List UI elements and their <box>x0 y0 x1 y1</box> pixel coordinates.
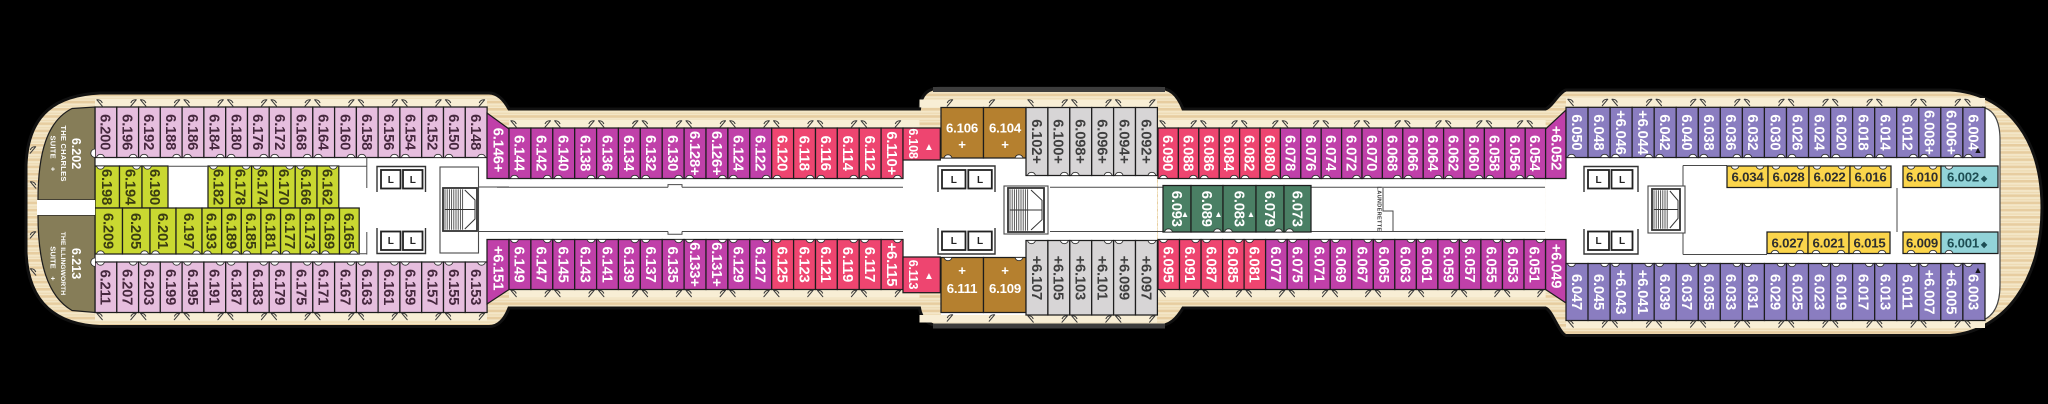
svg-text:6.021: 6.021 <box>1812 236 1844 251</box>
svg-text:6.196: 6.196 <box>119 114 135 150</box>
svg-text:6.074: 6.074 <box>1322 135 1338 172</box>
svg-text:6.026: 6.026 <box>1788 114 1804 150</box>
svg-text:6.008+: 6.008+ <box>1921 110 1937 155</box>
svg-text:6.096+: 6.096+ <box>1094 119 1110 164</box>
svg-text:+6.097: +6.097 <box>1137 256 1153 300</box>
svg-text:6.095: 6.095 <box>1160 246 1176 282</box>
svg-text:6.039: 6.039 <box>1656 274 1672 310</box>
svg-text:6.031: 6.031 <box>1744 274 1760 310</box>
svg-text:6.175: 6.175 <box>293 269 309 305</box>
svg-text:6.034: 6.034 <box>1731 170 1764 185</box>
svg-text:6.064: 6.064 <box>1424 135 1440 172</box>
svg-text:6.060: 6.060 <box>1465 135 1481 171</box>
svg-text:+6.043: +6.043 <box>1612 270 1628 314</box>
svg-text:6.063: 6.063 <box>1396 246 1412 282</box>
svg-text:6.146+: 6.146+ <box>489 128 505 173</box>
svg-text:L: L <box>951 175 957 186</box>
svg-text:◆: ◆ <box>1980 174 1988 183</box>
svg-text:6.135: 6.135 <box>664 246 680 282</box>
svg-text:6.023: 6.023 <box>1810 274 1826 310</box>
svg-text:L: L <box>977 175 983 186</box>
svg-text:6.073: 6.073 <box>1288 191 1304 227</box>
svg-text:6.037: 6.037 <box>1678 274 1694 310</box>
svg-text:6.022: 6.022 <box>1813 170 1845 185</box>
svg-text:6.141: 6.141 <box>598 246 614 282</box>
svg-text:6.092+: 6.092+ <box>1137 119 1153 164</box>
svg-text:6.114: 6.114 <box>839 136 855 172</box>
svg-text:6.011: 6.011 <box>1899 274 1915 309</box>
svg-text:▲: ▲ <box>1974 265 1983 275</box>
svg-text:6.194: 6.194 <box>122 169 138 206</box>
svg-text:6.174: 6.174 <box>253 169 269 206</box>
svg-text:6.071: 6.071 <box>1310 246 1326 282</box>
svg-text:6.084: 6.084 <box>1220 135 1236 172</box>
svg-text:6.091: 6.091 <box>1181 246 1197 282</box>
svg-text:+6.151: +6.151 <box>489 246 505 290</box>
svg-text:SUITE +: SUITE + <box>49 136 58 172</box>
svg-text:6.081: 6.081 <box>1246 246 1262 282</box>
svg-text:6.015: 6.015 <box>1853 236 1885 251</box>
svg-text:6.159: 6.159 <box>402 269 418 305</box>
svg-text:6.053: 6.053 <box>1504 246 1520 282</box>
svg-text:6.213: 6.213 <box>69 248 83 279</box>
svg-text:6.028: 6.028 <box>1772 170 1804 185</box>
svg-text:6.056: 6.056 <box>1506 135 1522 171</box>
svg-text:6.123: 6.123 <box>795 246 811 282</box>
svg-text:+6.044: +6.044 <box>1634 110 1650 155</box>
svg-text:6.201: 6.201 <box>154 213 170 249</box>
svg-text:6.106: 6.106 <box>946 121 978 136</box>
svg-text:6.131+: 6.131+ <box>708 242 724 287</box>
svg-text:6.189: 6.189 <box>222 213 238 249</box>
svg-text:L: L <box>410 236 416 247</box>
svg-text:6.086: 6.086 <box>1200 135 1216 171</box>
svg-text:6.132: 6.132 <box>642 135 658 171</box>
svg-text:6.170: 6.170 <box>275 169 291 205</box>
svg-text:6.108: 6.108 <box>906 128 920 159</box>
svg-text:6.156: 6.156 <box>380 114 396 150</box>
svg-text:6.038: 6.038 <box>1700 114 1716 150</box>
svg-text:6.163: 6.163 <box>358 269 374 305</box>
svg-text:6.183: 6.183 <box>249 269 265 305</box>
svg-text:6.147: 6.147 <box>533 246 549 282</box>
svg-text:6.117: 6.117 <box>861 247 877 282</box>
svg-text:SUITE +: SUITE + <box>49 246 58 281</box>
svg-text:6.130: 6.130 <box>664 135 680 171</box>
svg-text:6.047: 6.047 <box>1568 274 1584 310</box>
svg-text:6.059: 6.059 <box>1440 246 1456 282</box>
svg-text:6.075: 6.075 <box>1289 246 1305 282</box>
svg-text:6.200: 6.200 <box>97 114 113 150</box>
svg-text:6.055: 6.055 <box>1483 246 1499 282</box>
svg-text:6.178: 6.178 <box>232 169 248 205</box>
svg-text:6.120: 6.120 <box>773 135 789 171</box>
svg-text:6.167: 6.167 <box>336 269 352 305</box>
svg-text:6.001: 6.001 <box>1947 236 1979 251</box>
svg-text:6.198: 6.198 <box>98 169 114 205</box>
svg-text:+6.103: +6.103 <box>1072 256 1088 300</box>
svg-text:+: + <box>1001 137 1009 152</box>
svg-text:6.072: 6.072 <box>1343 135 1359 171</box>
svg-text:+6.046: +6.046 <box>1612 110 1628 154</box>
svg-text:6.150: 6.150 <box>445 114 461 150</box>
svg-text:6.104: 6.104 <box>989 121 1022 136</box>
svg-text:6.207: 6.207 <box>119 269 135 305</box>
svg-text:6.188: 6.188 <box>162 114 178 150</box>
svg-text:L: L <box>1595 175 1601 186</box>
svg-text:6.010: 6.010 <box>1906 170 1938 185</box>
svg-text:6.166: 6.166 <box>297 169 313 205</box>
svg-text:6.138: 6.138 <box>576 135 592 171</box>
svg-text:THE ILLINGWORTH: THE ILLINGWORTH <box>59 232 66 296</box>
svg-text:▲: ▲ <box>1214 209 1222 219</box>
svg-text:6.033: 6.033 <box>1722 274 1738 310</box>
svg-text:6.118: 6.118 <box>795 136 811 171</box>
svg-text:6.016: 6.016 <box>1854 170 1886 185</box>
svg-text:6.082: 6.082 <box>1241 135 1257 171</box>
svg-text:6.024: 6.024 <box>1810 114 1826 151</box>
svg-text:6.079: 6.079 <box>1261 191 1277 227</box>
svg-text:+6.099: +6.099 <box>1115 256 1131 300</box>
svg-text:6.058: 6.058 <box>1485 135 1501 171</box>
svg-text:6.036: 6.036 <box>1722 114 1738 150</box>
svg-text:6.030: 6.030 <box>1766 114 1782 150</box>
svg-text:6.066: 6.066 <box>1404 135 1420 171</box>
svg-text:6.085: 6.085 <box>1224 246 1240 282</box>
svg-text:6.077: 6.077 <box>1267 246 1283 282</box>
svg-text:6.125: 6.125 <box>773 246 789 282</box>
svg-text:L: L <box>1619 175 1625 186</box>
svg-text:6.067: 6.067 <box>1353 246 1369 282</box>
svg-text:6.013: 6.013 <box>1877 274 1893 310</box>
svg-text:6.017: 6.017 <box>1855 274 1871 310</box>
svg-text:+6.115: +6.115 <box>883 243 899 287</box>
svg-text:6.211: 6.211 <box>97 270 113 305</box>
svg-text:6.065: 6.065 <box>1375 246 1391 282</box>
svg-text:6.191: 6.191 <box>206 269 222 305</box>
svg-text:6.057: 6.057 <box>1461 246 1477 282</box>
svg-text:6.158: 6.158 <box>358 114 374 150</box>
svg-text:6.160: 6.160 <box>336 114 352 150</box>
svg-text:6.152: 6.152 <box>423 114 439 150</box>
svg-text:6.165: 6.165 <box>340 213 356 249</box>
svg-text:+6.101: +6.101 <box>1094 256 1110 300</box>
svg-text:6.109: 6.109 <box>989 281 1021 296</box>
svg-text:6.002: 6.002 <box>1947 170 1979 185</box>
svg-text:6.139: 6.139 <box>620 246 636 282</box>
svg-text:6.018: 6.018 <box>1855 114 1871 150</box>
svg-text:6.124: 6.124 <box>730 135 746 172</box>
svg-text:+6.107: +6.107 <box>1028 256 1044 300</box>
svg-text:6.029: 6.029 <box>1766 274 1782 310</box>
svg-text:6.186: 6.186 <box>184 114 200 150</box>
svg-text:L: L <box>951 236 957 247</box>
svg-text:6.184: 6.184 <box>206 114 222 151</box>
svg-text:▲: ▲ <box>1247 209 1255 219</box>
svg-text:6.116: 6.116 <box>817 136 833 171</box>
svg-text:6.042: 6.042 <box>1656 114 1672 150</box>
svg-text:THE CHARLES: THE CHARLES <box>59 125 68 181</box>
svg-text:6.179: 6.179 <box>271 269 287 305</box>
svg-text:6.162: 6.162 <box>319 169 335 205</box>
svg-text:6.003: 6.003 <box>1965 274 1981 310</box>
svg-text:6.035: 6.035 <box>1700 274 1716 310</box>
svg-text:6.187: 6.187 <box>227 269 243 305</box>
svg-text:L: L <box>388 175 394 186</box>
svg-text:6.062: 6.062 <box>1445 135 1461 171</box>
svg-text:L: L <box>1619 236 1625 247</box>
svg-text:6.185: 6.185 <box>242 213 258 249</box>
svg-text:6.087: 6.087 <box>1203 246 1219 282</box>
svg-text:6.027: 6.027 <box>1771 236 1803 251</box>
svg-text:6.148: 6.148 <box>467 114 483 150</box>
svg-text:6.161: 6.161 <box>380 269 396 305</box>
svg-text:6.203: 6.203 <box>140 269 156 305</box>
svg-text:6.112: 6.112 <box>861 136 877 171</box>
svg-text:6.133+: 6.133+ <box>686 242 702 287</box>
svg-text:+6.105: +6.105 <box>1050 256 1066 300</box>
svg-text:6.127: 6.127 <box>752 246 768 282</box>
svg-text:6.019: 6.019 <box>1832 274 1848 310</box>
svg-text:6.111: 6.111 <box>947 281 978 296</box>
svg-text:6.061: 6.061 <box>1418 246 1434 282</box>
svg-text:6.050: 6.050 <box>1568 114 1584 150</box>
svg-text:6.121: 6.121 <box>817 246 833 282</box>
svg-text:6.177: 6.177 <box>281 213 297 249</box>
svg-text:6.012: 6.012 <box>1899 114 1915 150</box>
svg-text:6.100+: 6.100+ <box>1050 119 1066 164</box>
svg-text:6.129: 6.129 <box>730 246 746 282</box>
svg-text:6.006+: 6.006+ <box>1943 110 1959 155</box>
svg-text:6.192: 6.192 <box>140 114 156 150</box>
svg-text:6.083: 6.083 <box>1230 191 1246 227</box>
svg-text:6.020: 6.020 <box>1832 114 1848 150</box>
svg-text:6.164: 6.164 <box>315 114 331 151</box>
svg-text:+: + <box>1001 263 1009 278</box>
svg-text:6.155: 6.155 <box>445 269 461 305</box>
svg-text:▲: ▲ <box>1974 145 1983 155</box>
svg-text:6.136: 6.136 <box>598 135 614 171</box>
svg-text:+6.041: +6.041 <box>1634 270 1650 314</box>
svg-text:6.202: 6.202 <box>69 138 83 169</box>
svg-text:6.182: 6.182 <box>210 169 226 205</box>
svg-text:6.143: 6.143 <box>576 246 592 282</box>
svg-text:6.190: 6.190 <box>146 169 162 205</box>
svg-text:6.153: 6.153 <box>467 269 483 305</box>
svg-text:6.195: 6.195 <box>184 269 200 305</box>
svg-text:6.014: 6.014 <box>1877 114 1893 151</box>
svg-text:LAUNDERETTE: LAUNDERETTE <box>1376 187 1382 232</box>
svg-text:6.098+: 6.098+ <box>1072 119 1088 164</box>
svg-text:◆: ◆ <box>1980 240 1988 249</box>
svg-text:6.180: 6.180 <box>227 114 243 150</box>
svg-text:6.172: 6.172 <box>271 114 287 150</box>
svg-text:6.078: 6.078 <box>1281 135 1297 171</box>
svg-text:6.205: 6.205 <box>127 213 143 249</box>
svg-text:6.119: 6.119 <box>839 247 855 282</box>
svg-text:6.045: 6.045 <box>1590 274 1606 310</box>
svg-text:6.149: 6.149 <box>511 246 527 282</box>
svg-text:6.144: 6.144 <box>511 135 527 172</box>
svg-text:+6.007: +6.007 <box>1921 270 1937 314</box>
svg-text:6.145: 6.145 <box>555 246 571 282</box>
svg-text:6.076: 6.076 <box>1302 135 1318 171</box>
svg-text:6.040: 6.040 <box>1678 114 1694 150</box>
svg-text:6.009: 6.009 <box>1906 236 1938 251</box>
svg-text:6.051: 6.051 <box>1526 246 1542 282</box>
svg-text:6.199: 6.199 <box>162 269 178 305</box>
svg-text:6.025: 6.025 <box>1788 274 1804 310</box>
svg-text:6.054: 6.054 <box>1526 135 1542 172</box>
svg-text:▲: ▲ <box>1181 209 1189 219</box>
svg-text:6.193: 6.193 <box>203 213 219 249</box>
svg-text:6.169: 6.169 <box>321 213 337 249</box>
svg-text:L: L <box>388 236 394 247</box>
svg-text:+6.052: +6.052 <box>1547 126 1563 170</box>
svg-text:6.126+: 6.126+ <box>708 131 724 176</box>
svg-text:6.089: 6.089 <box>1198 191 1214 227</box>
svg-text:+: + <box>958 137 966 152</box>
svg-text:6.069: 6.069 <box>1332 246 1348 282</box>
svg-text:6.137: 6.137 <box>642 246 658 282</box>
svg-text:6.094+: 6.094+ <box>1115 119 1131 164</box>
svg-text:6.171: 6.171 <box>315 269 331 305</box>
svg-text:L: L <box>410 175 416 186</box>
svg-text:6.068: 6.068 <box>1383 135 1399 171</box>
svg-text:L: L <box>1595 236 1601 247</box>
svg-text:+6.049: +6.049 <box>1547 244 1563 288</box>
svg-text:6.048: 6.048 <box>1590 114 1606 150</box>
svg-text:6.110+: 6.110+ <box>883 131 899 175</box>
svg-text:6.176: 6.176 <box>249 114 265 150</box>
svg-text:6.113: 6.113 <box>906 260 920 290</box>
svg-text:6.154: 6.154 <box>402 114 418 151</box>
svg-text:6.173: 6.173 <box>301 213 317 249</box>
svg-text:6.128+: 6.128+ <box>686 131 702 176</box>
svg-text:6.181: 6.181 <box>262 213 278 249</box>
svg-text:6.197: 6.197 <box>180 213 196 249</box>
svg-text:6.102+: 6.102+ <box>1028 119 1044 164</box>
svg-text:6.080: 6.080 <box>1261 135 1277 171</box>
svg-text:▲: ▲ <box>924 142 934 153</box>
svg-text:6.142: 6.142 <box>533 135 549 171</box>
svg-text:6.090: 6.090 <box>1159 135 1175 171</box>
svg-text:6.209: 6.209 <box>100 213 116 249</box>
svg-text:L: L <box>977 236 983 247</box>
svg-text:6.168: 6.168 <box>293 114 309 150</box>
svg-text:6.157: 6.157 <box>423 269 439 305</box>
svg-text:+: + <box>958 263 966 278</box>
svg-text:6.140: 6.140 <box>555 135 571 171</box>
svg-text:6.088: 6.088 <box>1179 135 1195 171</box>
svg-text:6.070: 6.070 <box>1363 135 1379 171</box>
svg-text:+6.005: +6.005 <box>1943 270 1959 314</box>
svg-text:6.134: 6.134 <box>620 135 636 172</box>
svg-text:▲: ▲ <box>924 271 934 282</box>
svg-text:6.032: 6.032 <box>1744 114 1760 150</box>
svg-text:6.122: 6.122 <box>752 135 768 171</box>
